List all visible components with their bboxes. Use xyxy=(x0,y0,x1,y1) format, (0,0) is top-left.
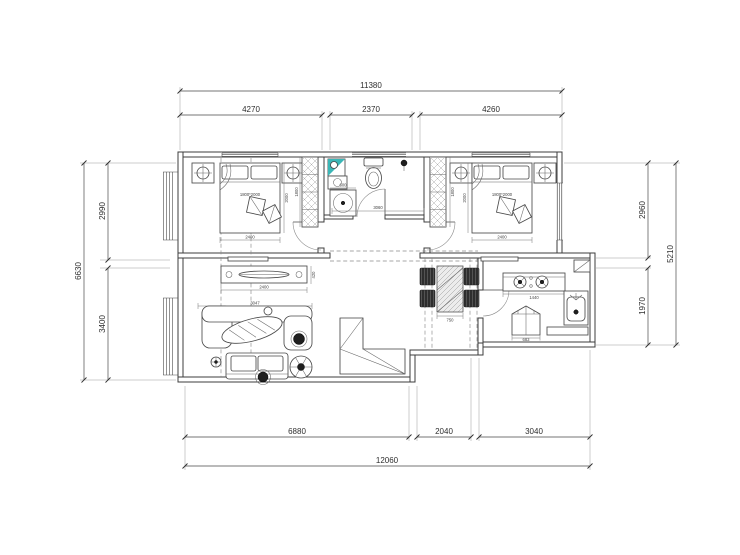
tv-cabinet-dim: 2400 xyxy=(259,285,269,290)
floor-plan-drawing: 1800*2000 2400 2000 1800 600 xyxy=(0,0,740,555)
bed-size-label: 1800*2000 xyxy=(240,192,261,197)
toilet xyxy=(364,158,383,189)
dining-chair xyxy=(464,290,479,307)
cooktop-counter xyxy=(503,273,565,291)
counter-dim: 1440 xyxy=(529,295,539,300)
wardrobe-dim: 1800 xyxy=(294,187,299,197)
dining-table xyxy=(437,266,463,312)
dining-chair xyxy=(464,268,479,285)
shower-head-icon xyxy=(401,160,407,171)
bed-depth-dim: 2000 xyxy=(462,193,467,203)
bath-width-dim: 3060 xyxy=(373,205,383,210)
dim-bottom-seg3: 3040 xyxy=(525,427,543,436)
pillow xyxy=(503,166,529,179)
dim-top-seg1: 4270 xyxy=(242,105,260,114)
plant-icon xyxy=(258,372,268,382)
loveseat xyxy=(226,353,288,379)
bay-window-lower-left xyxy=(163,298,178,375)
dim-top-total: 11380 xyxy=(360,81,382,90)
burner-icon xyxy=(514,276,526,288)
living-room: 2400 3047 420 xyxy=(198,266,405,385)
dim-right-total: 5210 xyxy=(666,245,675,263)
dim-top-seg2: 2370 xyxy=(362,105,380,114)
dining-chair xyxy=(420,290,435,307)
bench xyxy=(228,257,268,261)
kitchen-sink xyxy=(564,291,588,325)
bathroom: 600 3060 xyxy=(328,158,424,216)
dimension-chain-left: 6630 2990 3400 xyxy=(74,161,176,383)
dimension-chain-top: 11380 4270 2370 4260 xyxy=(178,81,565,150)
living-width-dim: 3047 xyxy=(250,301,260,306)
dining-chair xyxy=(420,268,435,285)
dim-top-seg3: 4260 xyxy=(482,105,500,114)
bedroom-left: 1800*2000 2400 2000 1800 xyxy=(192,157,318,261)
bedroom-right: 1800*2000 2400 2000 1800 xyxy=(430,157,556,261)
kitchen: 1440 683 xyxy=(503,273,588,342)
door-bath xyxy=(357,189,385,217)
entry-stair-feature xyxy=(340,318,405,374)
bed-width-dim: 2400 xyxy=(497,235,507,240)
bay-window-upper-left xyxy=(163,172,178,240)
washing-machine xyxy=(330,190,356,216)
sectional-sofa xyxy=(202,306,312,350)
dim-bottom-seg1: 6880 xyxy=(288,427,306,436)
washer-dim: 600 xyxy=(340,183,348,188)
dim-bottom-seg2: 2040 xyxy=(435,427,453,436)
dim-bottom-total: 12060 xyxy=(376,456,399,465)
refrigerator xyxy=(512,306,540,335)
bed-size-label: 1800*2000 xyxy=(492,192,513,197)
round-side-table xyxy=(290,356,312,378)
tv-depth-dim: 420 xyxy=(311,271,316,279)
dim-left-total: 6630 xyxy=(74,262,83,280)
bed-width-dim: 2400 xyxy=(245,235,255,240)
burner-icon xyxy=(536,276,548,288)
plant-icon xyxy=(211,357,221,367)
bench xyxy=(481,257,518,261)
bed-depth-dim: 2000 xyxy=(284,193,289,203)
wardrobe-dim: 1800 xyxy=(450,187,455,197)
tv-cabinet xyxy=(221,266,307,283)
pillow xyxy=(251,166,277,179)
table-dim: 750 xyxy=(447,318,455,323)
plant-icon xyxy=(294,334,305,345)
counter-segment xyxy=(547,327,588,335)
dim-right-seg1: 2960 xyxy=(638,201,647,219)
dim-left-seg1: 2990 xyxy=(98,202,107,220)
dim-right-seg2: 1970 xyxy=(638,297,647,315)
decor-bowl xyxy=(264,307,272,315)
floor-plan-canvas: 1800*2000 2400 2000 1800 600 xyxy=(0,0,740,555)
fridge-dim: 683 xyxy=(523,337,531,342)
dim-left-seg2: 3400 xyxy=(98,315,107,333)
